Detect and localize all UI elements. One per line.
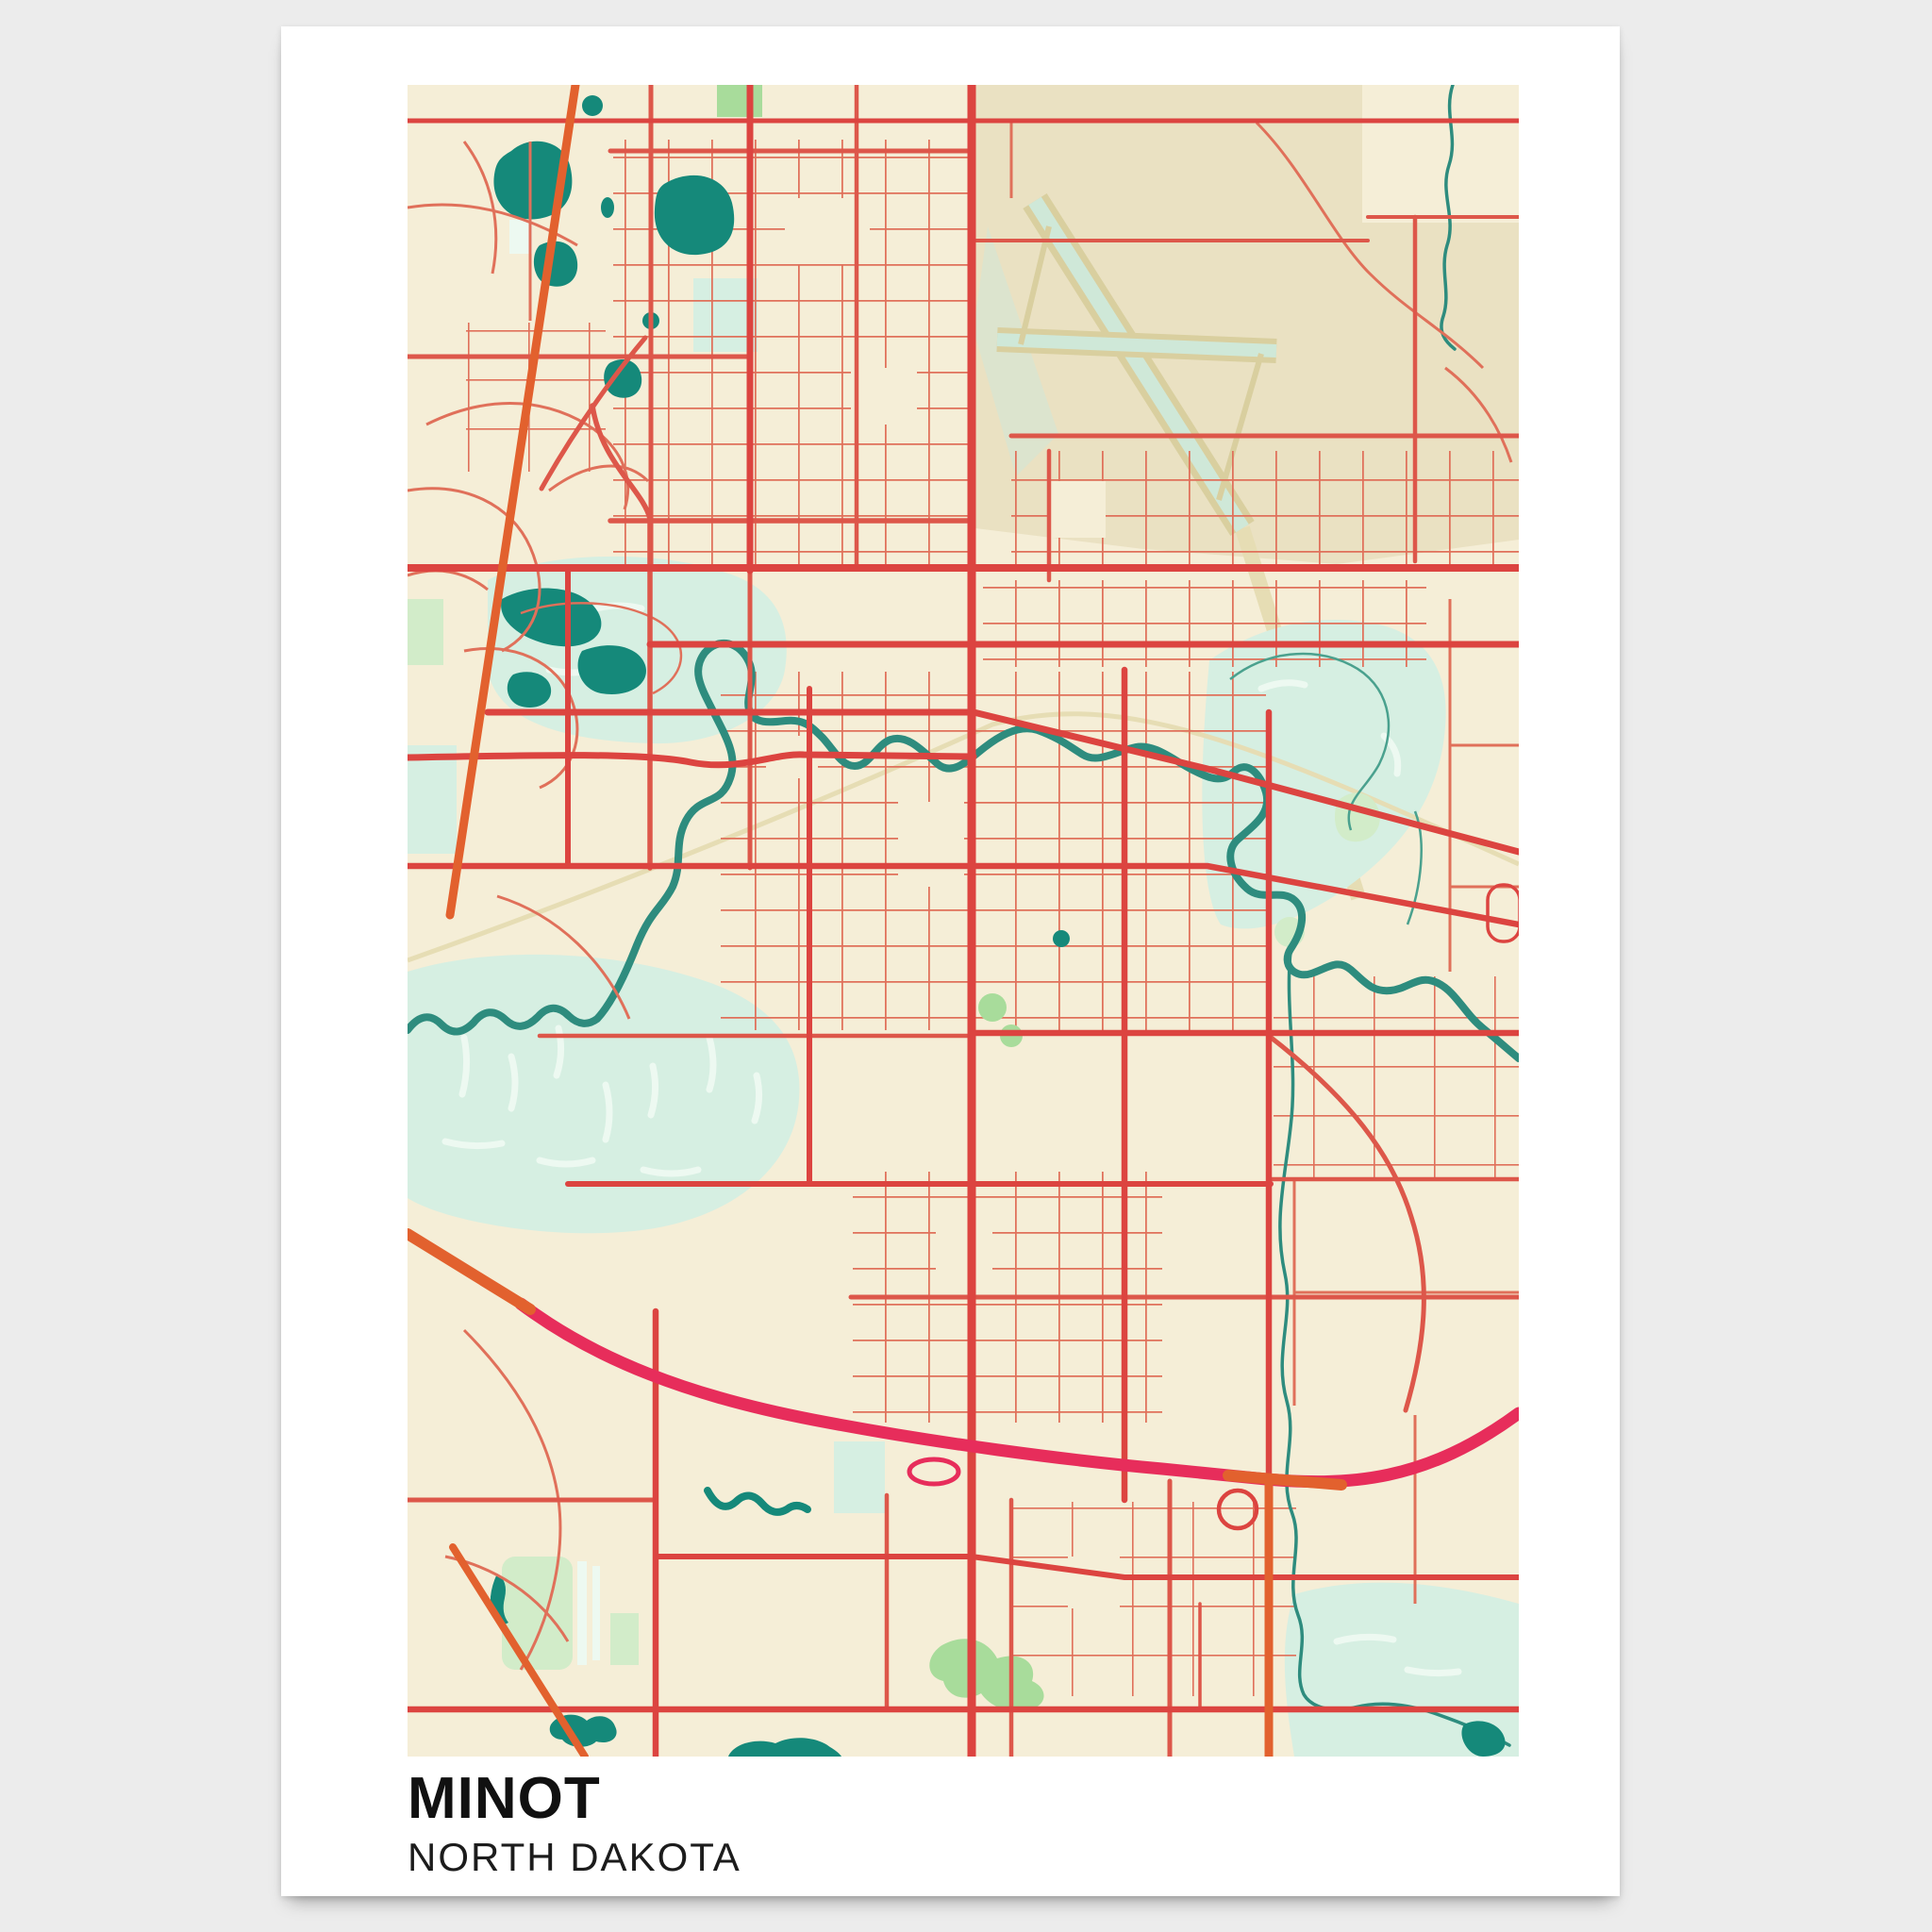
poster-caption: MINOT NORTH DAKOTA bbox=[408, 1770, 1445, 1877]
city-map bbox=[408, 85, 1519, 1757]
map-canvas bbox=[408, 85, 1519, 1757]
state-subtitle: NORTH DAKOTA bbox=[408, 1838, 1445, 1877]
map-poster: MINOT NORTH DAKOTA bbox=[281, 26, 1620, 1896]
city-title: MINOT bbox=[408, 1770, 1445, 1828]
page-background: MINOT NORTH DAKOTA bbox=[0, 0, 1932, 1932]
